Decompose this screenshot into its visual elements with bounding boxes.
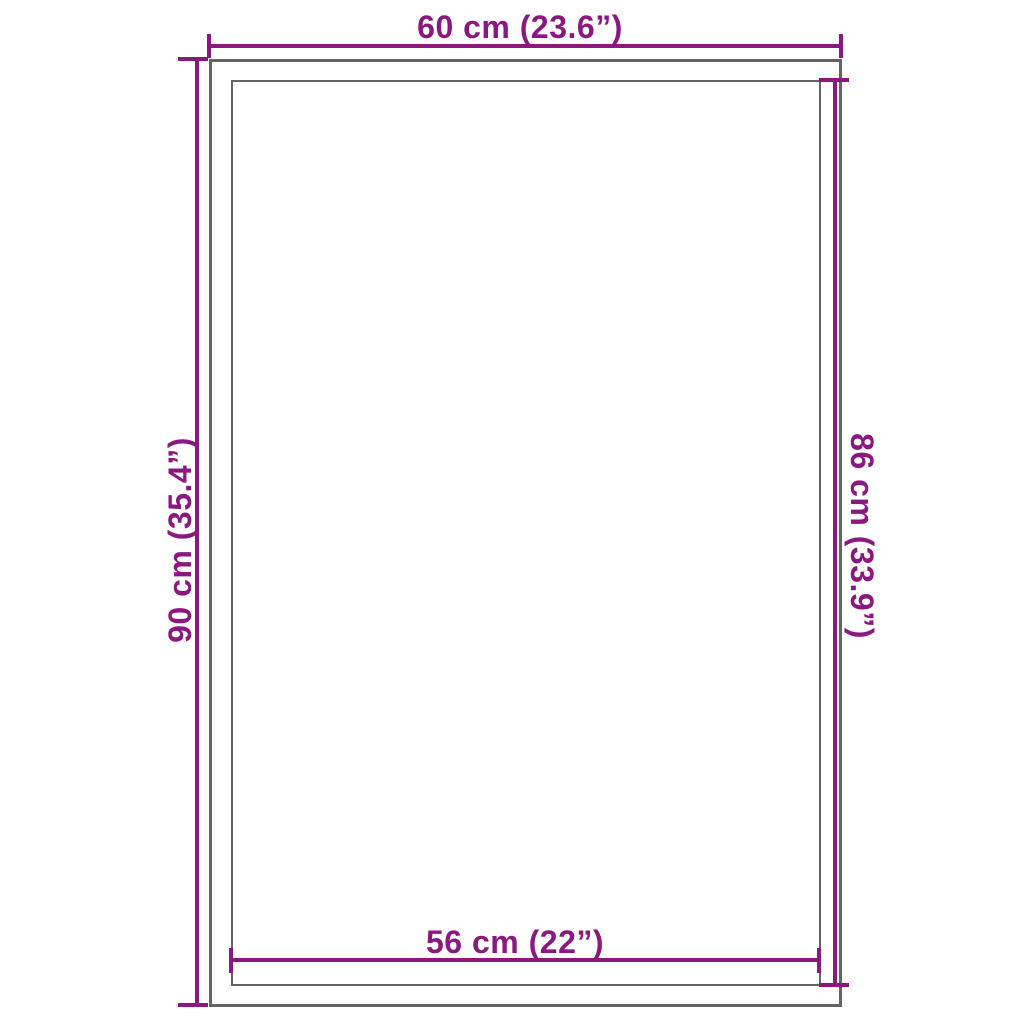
left-dimension-top-tick <box>178 57 208 61</box>
right-dimension-top-tick <box>819 78 849 82</box>
right-dimension-line <box>833 80 837 987</box>
bottom-dimension-right-tick <box>817 948 821 973</box>
top-dimension-right-tick <box>839 34 843 58</box>
right-dimension-bottom-tick <box>819 983 849 987</box>
inner-outline-rectangle <box>231 80 821 986</box>
right-dimension-label: 86 cm (33.9”) <box>846 433 878 639</box>
left-dimension-bottom-tick <box>178 1003 208 1007</box>
bottom-dimension-label: 56 cm (22”) <box>426 926 604 958</box>
top-dimension-left-tick <box>207 34 211 58</box>
top-dimension-label: 60 cm (23.6”) <box>417 11 623 43</box>
dimension-diagram: 60 cm (23.6”) 90 cm (35.4”) 86 cm (33.9”… <box>0 0 1024 1024</box>
bottom-dimension-left-tick <box>229 948 233 973</box>
left-dimension-label: 90 cm (35.4”) <box>164 437 196 643</box>
